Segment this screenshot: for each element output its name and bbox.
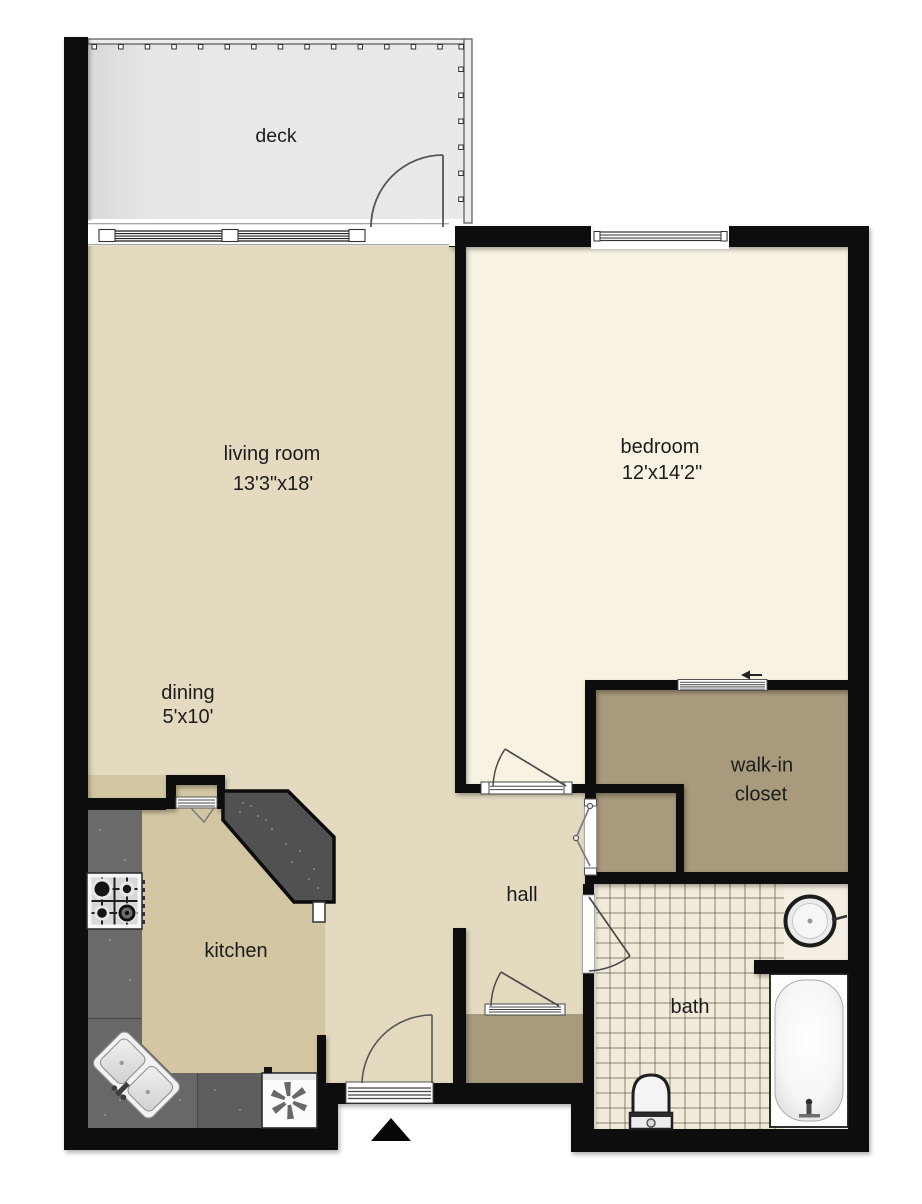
svg-text:closet: closet — [735, 784, 788, 806]
svg-text:12'x14'2": 12'x14'2" — [622, 462, 702, 484]
svg-text:living room: living room — [224, 443, 321, 465]
svg-text:bath: bath — [671, 996, 710, 1018]
svg-text:13'3"x18': 13'3"x18' — [233, 473, 313, 495]
svg-text:5'x10': 5'x10' — [162, 706, 213, 728]
svg-text:bedroom: bedroom — [621, 436, 700, 458]
svg-text:hall: hall — [506, 884, 537, 906]
svg-text:walk-in: walk-in — [730, 755, 793, 777]
svg-text:kitchen: kitchen — [204, 940, 267, 962]
svg-text:deck: deck — [255, 125, 296, 147]
svg-text:dining: dining — [161, 682, 214, 704]
